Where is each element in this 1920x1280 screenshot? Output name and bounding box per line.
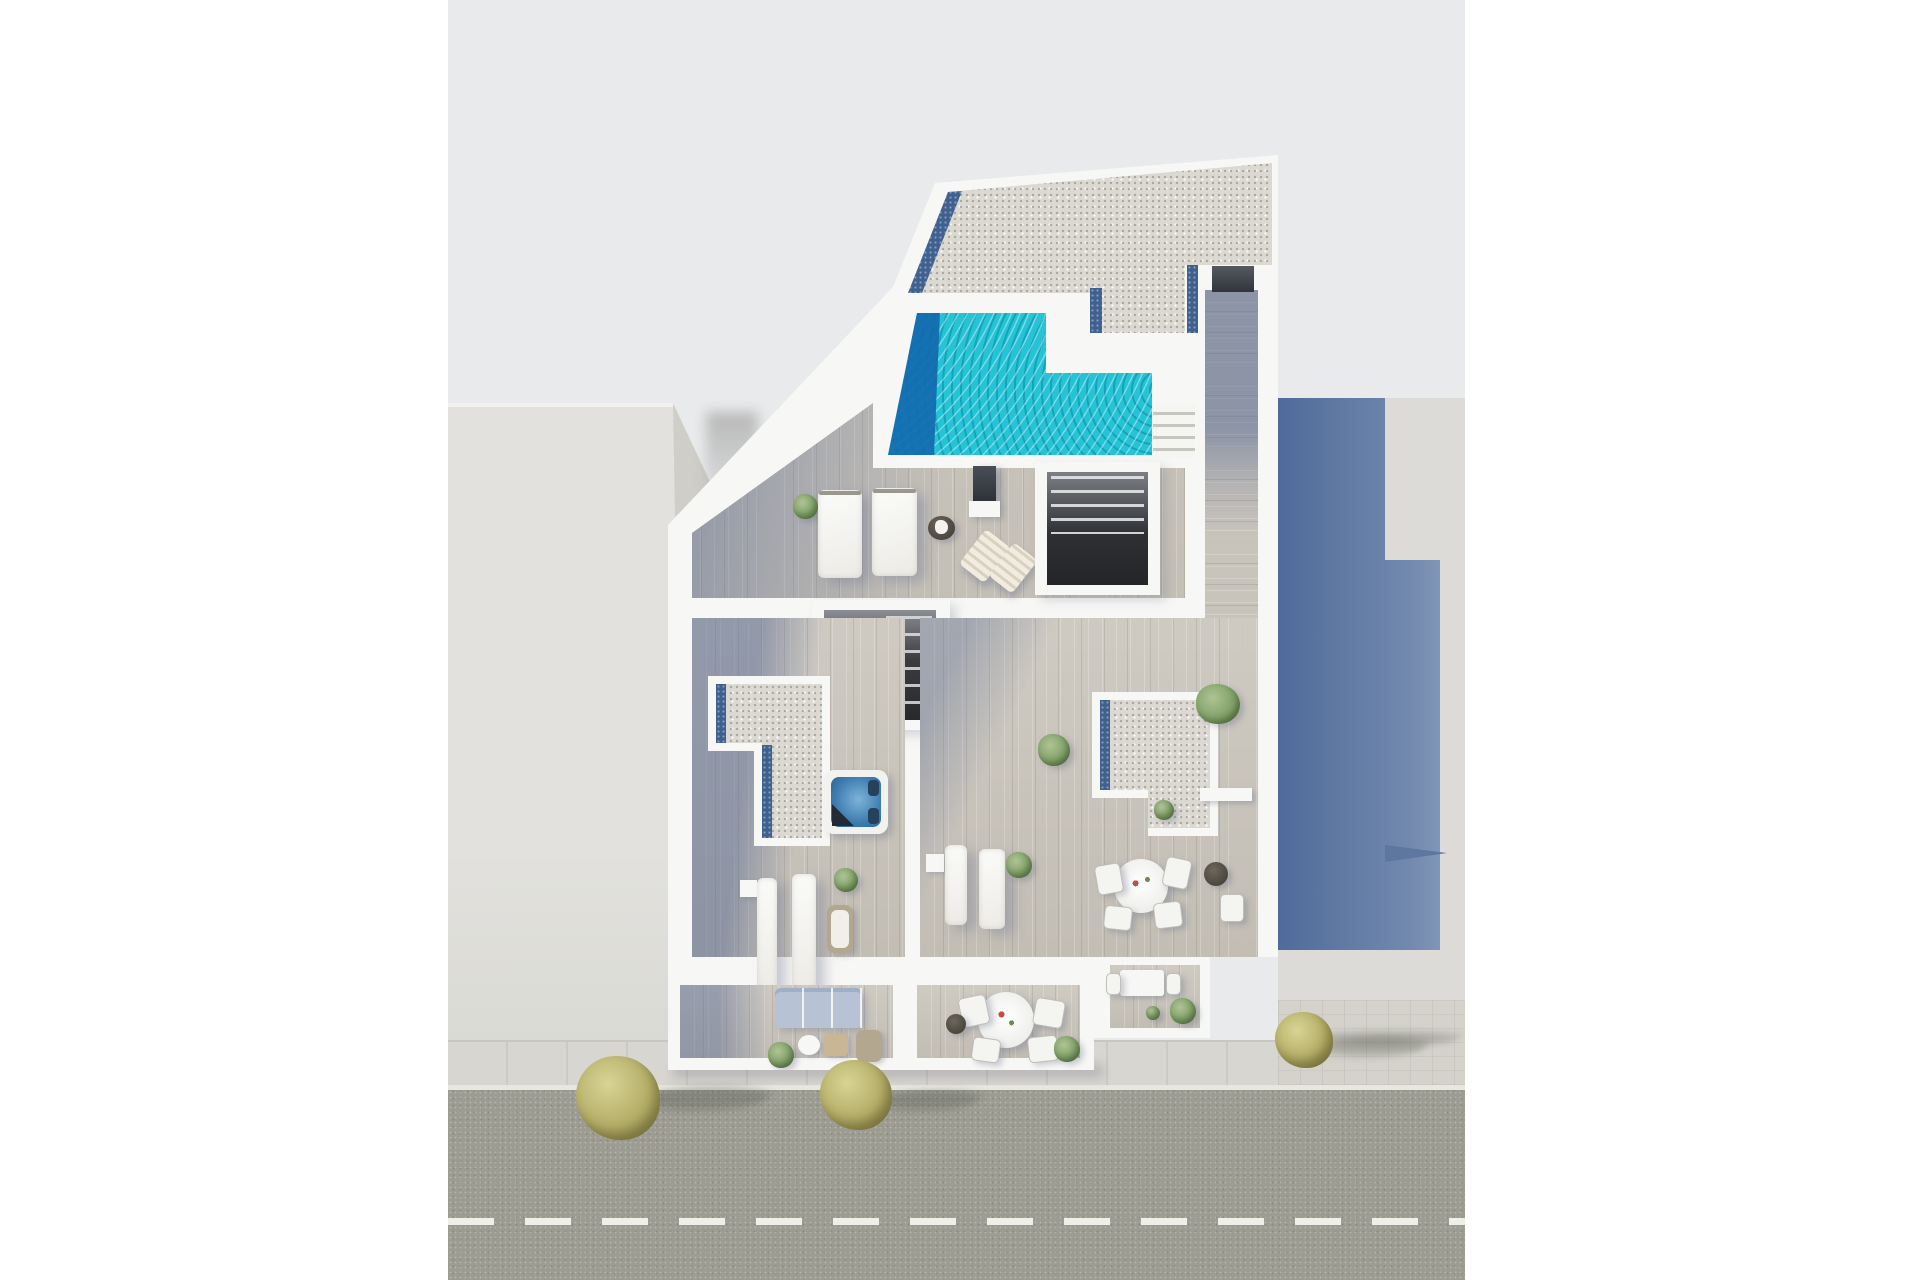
wicker-lounge-chair (827, 905, 853, 953)
hot-tub-seat (868, 808, 879, 824)
street-dashed-center-line (448, 1218, 1465, 1225)
towel-on-table (935, 520, 948, 534)
hot-tub (824, 770, 888, 834)
stairwell-right-enclosure (1035, 462, 1160, 595)
solar-glass-strip-right (1187, 265, 1198, 333)
sun-lounger-b2 (979, 849, 1005, 929)
pool-stairs (1153, 403, 1195, 458)
east-walkway (1205, 290, 1258, 618)
terrace-stool (1220, 894, 1244, 922)
privacy-screen (973, 466, 996, 503)
walkway-doorway (1212, 266, 1254, 292)
sidewalk-tree-2 (820, 1060, 892, 1130)
balcony-side-table-dark (946, 1014, 966, 1034)
sun-lounger-a1 (757, 878, 777, 990)
sun-lounger-b1 (945, 845, 967, 925)
balcony-plant (768, 1042, 794, 1068)
stairwell-right-steps (1051, 476, 1144, 534)
balcony-plant (1054, 1036, 1080, 1062)
balcony-chair (1032, 997, 1066, 1030)
balcony-pot (1146, 1006, 1160, 1020)
coffee-table-round (798, 1035, 820, 1055)
terrace-plant (1038, 734, 1070, 766)
walkway-plant-large (1196, 684, 1240, 724)
walkway-shadow (1205, 290, 1258, 618)
stairwell-right-opening (1047, 472, 1148, 585)
sunbed-double-2 (872, 488, 917, 576)
sunbed-headrail (873, 489, 916, 493)
gravel-roof-left-glass-a (716, 684, 726, 743)
wicker-armchair (856, 1030, 882, 1062)
left-neighbor-roof-edge-highlight (448, 403, 674, 407)
dining-chair (1153, 900, 1184, 929)
balcony-small-chair (1166, 973, 1181, 995)
gravel-roof-left-glass-b (762, 745, 772, 838)
outdoor-sofa (775, 988, 862, 1028)
hot-tub-seat (868, 780, 879, 796)
privacy-screen-base (969, 501, 1000, 517)
sunbed-headrail (819, 491, 861, 495)
sunbed-double-1 (818, 490, 862, 578)
balcony-bush (1170, 998, 1196, 1024)
gravel-roof-right-glass (1100, 700, 1110, 790)
render-scene (448, 0, 1465, 1280)
dining-chair (1103, 905, 1133, 932)
terrace-plant (1006, 852, 1032, 878)
chair-cushion (831, 910, 849, 948)
round-side-table-dark (1204, 862, 1228, 886)
sofa-cushion-seams (775, 988, 862, 1028)
balcony-chair (970, 1036, 1001, 1064)
balcony-small-chair (1106, 973, 1121, 995)
terrace-plant (834, 868, 858, 892)
deck-bush (793, 494, 818, 519)
solar-glass-strip-middle (1090, 288, 1102, 333)
aerial-render-canvas (0, 0, 1920, 1280)
sidewalk-tree-1 (576, 1056, 660, 1140)
terrace-bench (1200, 788, 1252, 801)
small-side-table (740, 880, 757, 897)
small-side-table (926, 854, 944, 872)
wicker-side-table (928, 516, 955, 540)
dining-chair (1094, 862, 1125, 896)
coffee-table-wood (824, 1034, 848, 1056)
gravel-roof-bush (1154, 800, 1174, 820)
sidewalk-tree-3 (1275, 1012, 1333, 1068)
sun-lounger-a2 (792, 874, 816, 990)
balcony-small-table (1120, 970, 1164, 996)
